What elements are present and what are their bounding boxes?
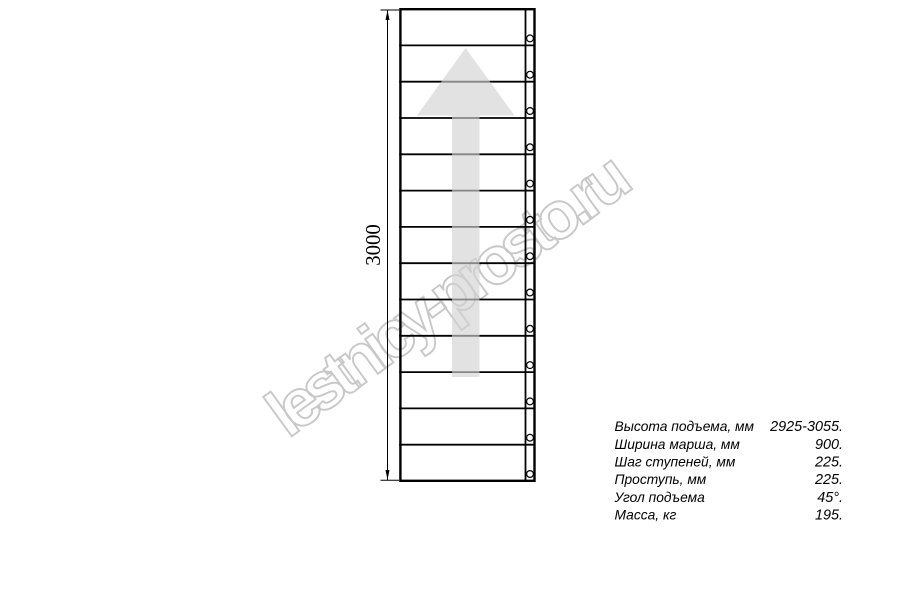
svg-text:900.: 900. (815, 437, 843, 453)
svg-text:2925-3055.: 2925-3055. (769, 419, 843, 435)
svg-text:3000: 3000 (362, 224, 385, 266)
svg-text:Высота подъема, мм: Высота подъема, мм (615, 419, 755, 434)
svg-text:Проступь, мм: Проступь, мм (615, 472, 707, 487)
svg-text:Шаг ступеней, мм: Шаг ступеней, мм (615, 455, 736, 470)
svg-text:Масса, кг: Масса, кг (615, 507, 677, 522)
svg-text:195.: 195. (815, 507, 843, 523)
svg-text:Угол подъема: Угол подъема (614, 490, 706, 505)
svg-text:45°.: 45°. (817, 490, 843, 506)
svg-text:Ширина марша, мм: Ширина марша, мм (615, 437, 741, 452)
svg-text:225.: 225. (814, 455, 843, 471)
svg-text:225.: 225. (814, 472, 843, 488)
svg-text:lestnicy-prosto.ru: lestnicy-prosto.ru (253, 140, 642, 451)
